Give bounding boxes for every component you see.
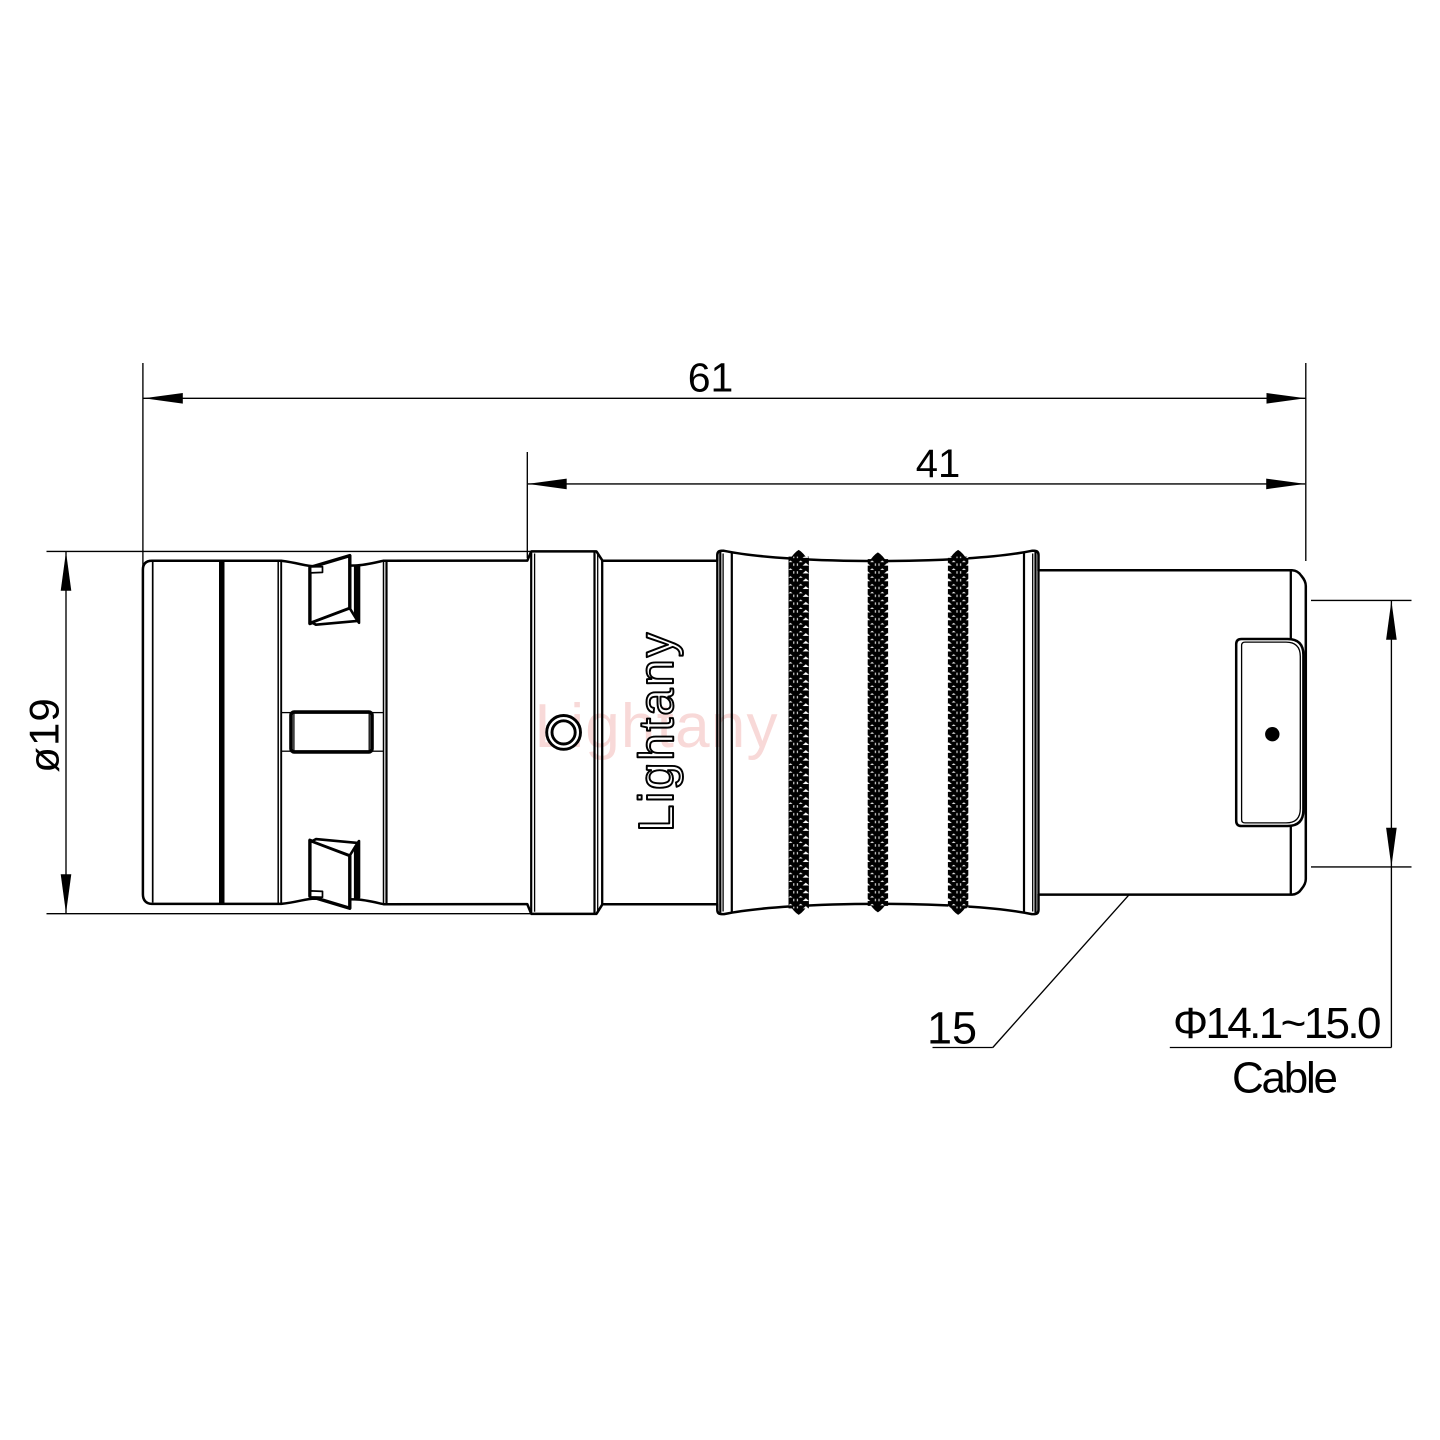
svg-text:ø19: ø19 — [21, 697, 68, 772]
svg-text:15: 15 — [927, 1003, 977, 1054]
svg-text:61: 61 — [688, 355, 734, 401]
svg-text:Cable: Cable — [1232, 1053, 1338, 1102]
svg-text:Lightany: Lightany — [630, 631, 684, 832]
svg-text:Φ14.1~15.0: Φ14.1~15.0 — [1173, 999, 1382, 1048]
svg-text:41: 41 — [916, 442, 961, 486]
